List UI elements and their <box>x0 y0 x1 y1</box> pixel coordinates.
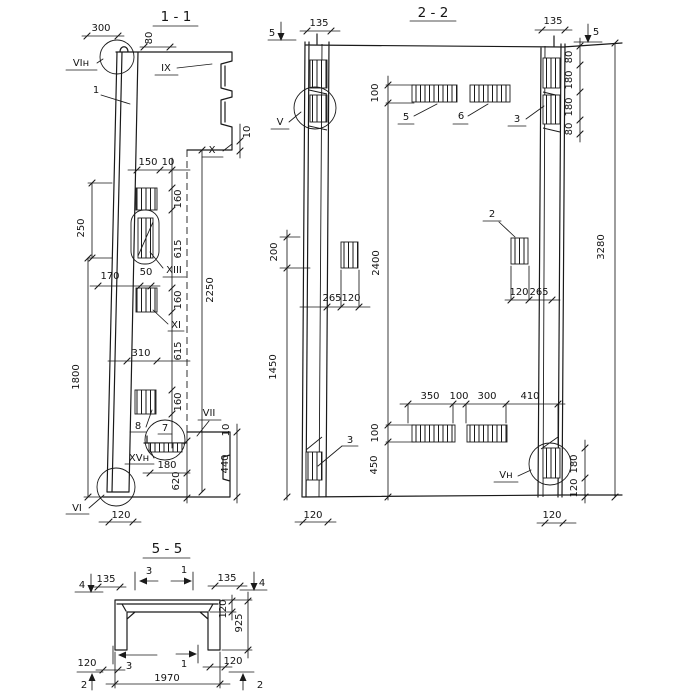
embedded-plate <box>136 288 157 312</box>
dim-170: 170 <box>100 271 119 282</box>
cut-marker-3-top: 3 <box>146 566 152 577</box>
dim-150: 150 <box>138 157 157 168</box>
section-5-5-view: 5 - 5 135 135 4 4 3 1 3 1 120 925 120 12… <box>75 541 267 691</box>
dim-135-right: 135 <box>543 16 562 27</box>
embedded-plate <box>306 452 322 480</box>
dim-250: 250 <box>76 218 87 237</box>
section-2-2-view: 2 - 2 135 135 5 5 100 80 180 180 80 V 3 … <box>268 5 622 526</box>
dim-180-br: 180 <box>569 454 580 473</box>
embedded-plate <box>543 95 560 124</box>
cut-marker-4-right: 4 <box>259 578 265 589</box>
dim-1970: 1970 <box>154 673 179 684</box>
section-1-1-view: 1 - 1 300 80 VIн 1 IX X 10 150 10 160 61… <box>66 9 253 525</box>
dim-925: 925 <box>234 613 245 632</box>
dim-100-bottom: 100 <box>370 423 381 442</box>
callout-x: X <box>209 145 216 156</box>
dim-10-top: 10 <box>162 157 175 168</box>
dim-180: 180 <box>157 460 176 471</box>
dim-50: 50 <box>140 267 153 278</box>
cut-marker-2-right: 2 <box>257 680 263 691</box>
embedded-plate <box>412 425 455 442</box>
embedded-plate <box>310 95 327 122</box>
embedded-plate <box>310 60 327 88</box>
dim-3280: 3280 <box>596 234 607 259</box>
dim-120-bottom-right: 120 <box>542 510 561 521</box>
callout-vii: VII <box>203 408 216 419</box>
embedded-plate <box>341 242 358 268</box>
engineering-drawing-sheet: 1 - 1 300 80 VIн 1 IX X 10 150 10 160 61… <box>0 0 700 700</box>
cut-marker-5-left: 5 <box>269 28 275 39</box>
dim-135-right: 135 <box>217 573 236 584</box>
dim-350: 350 <box>420 391 439 402</box>
cut-marker-5-right: 5 <box>593 27 599 38</box>
callout-xv-n: XVн <box>129 453 149 464</box>
cut-marker-arrowheads <box>278 33 592 43</box>
callout-ix: IX <box>161 63 171 74</box>
dim-100-mid: 100 <box>449 391 468 402</box>
callout-item-7: 7 <box>162 423 168 434</box>
embedded-plate <box>543 448 560 478</box>
dim-180-a: 180 <box>564 70 575 89</box>
cut-marker-3-bottom: 3 <box>126 661 132 672</box>
dimension-ticks <box>95 583 251 687</box>
cut-marker-1-top: 1 <box>181 565 187 576</box>
callout-xiii: XIII <box>166 265 182 276</box>
dim-410: 410 <box>520 391 539 402</box>
cut-marker-1-bottom: 1 <box>181 659 187 670</box>
dim-10-vii: 10 <box>221 424 232 437</box>
dim-120-right: 120 <box>223 656 242 667</box>
dim-135-left: 135 <box>96 574 115 585</box>
dim-450: 450 <box>369 455 380 474</box>
callout-xi: XI <box>171 320 181 331</box>
dim-120-flange: 120 <box>218 599 229 618</box>
dim-2400: 2400 <box>371 250 382 275</box>
cut-marker-4-left: 4 <box>79 580 85 591</box>
callout-vi-top: VIн <box>73 58 89 69</box>
dim-265-mid: 265 <box>529 287 548 298</box>
dim-120-br: 120 <box>569 478 580 497</box>
dim-80: 80 <box>144 32 155 45</box>
dim-1450: 1450 <box>268 354 279 379</box>
dim-120: 120 <box>111 510 130 521</box>
embedded-plate <box>135 390 156 414</box>
section-5-5-title: 5 - 5 <box>152 541 183 557</box>
embedded-plate <box>543 58 560 88</box>
dim-80-a: 80 <box>564 51 575 64</box>
dim-10-x: 10 <box>242 126 253 139</box>
callout-item-3-top: 3 <box>514 114 520 125</box>
dim-120-mid: 120 <box>509 287 528 298</box>
dim-300: 300 <box>477 391 496 402</box>
dim-160-1: 160 <box>173 189 184 208</box>
section-1-1-title: 1 - 1 <box>161 9 192 25</box>
embedded-plate <box>136 188 157 210</box>
dim-160-2: 160 <box>173 290 184 309</box>
dim-1800: 1800 <box>71 364 82 389</box>
section-2-2-title: 2 - 2 <box>418 5 449 21</box>
callout-item-8: 8 <box>135 421 141 432</box>
embedded-plate <box>467 425 507 442</box>
dim-265-left: 265 <box>322 293 341 304</box>
dim-180-b: 180 <box>564 97 575 116</box>
callout-item-6: 6 <box>458 111 464 122</box>
embedded-plate-2 <box>511 238 528 264</box>
dim-615-2: 615 <box>173 341 184 360</box>
embedded-plate-6 <box>470 85 510 102</box>
callout-v-n: Vн <box>499 470 512 481</box>
dim-440: 440 <box>220 454 231 473</box>
cut-marker-2-left: 2 <box>81 680 87 691</box>
callout-item-5: 5 <box>403 112 409 123</box>
dim-80-b: 80 <box>564 123 575 136</box>
dim-120-left: 120 <box>341 293 360 304</box>
callout-vi-bottom: VI <box>72 503 82 514</box>
dim-200: 200 <box>269 242 280 261</box>
embedded-plate-5 <box>412 85 457 102</box>
dim-2250: 2250 <box>205 277 216 302</box>
embedded-plate <box>149 443 182 452</box>
dim-620: 620 <box>171 471 182 490</box>
callout-item-2: 2 <box>489 209 495 220</box>
callout-v: V <box>277 117 284 128</box>
dim-300: 300 <box>91 23 110 34</box>
channel-outline <box>115 600 220 650</box>
dim-120-bottom-left: 120 <box>303 510 322 521</box>
dim-120-left: 120 <box>77 658 96 669</box>
dim-310: 310 <box>131 348 150 359</box>
dim-100-top: 100 <box>370 83 381 102</box>
dim-615-1: 615 <box>173 239 184 258</box>
callout-item-1: 1 <box>93 85 99 96</box>
dim-135-left: 135 <box>309 18 328 29</box>
dim-160-3: 160 <box>173 392 184 411</box>
callout-item-3-bottom: 3 <box>347 435 353 446</box>
